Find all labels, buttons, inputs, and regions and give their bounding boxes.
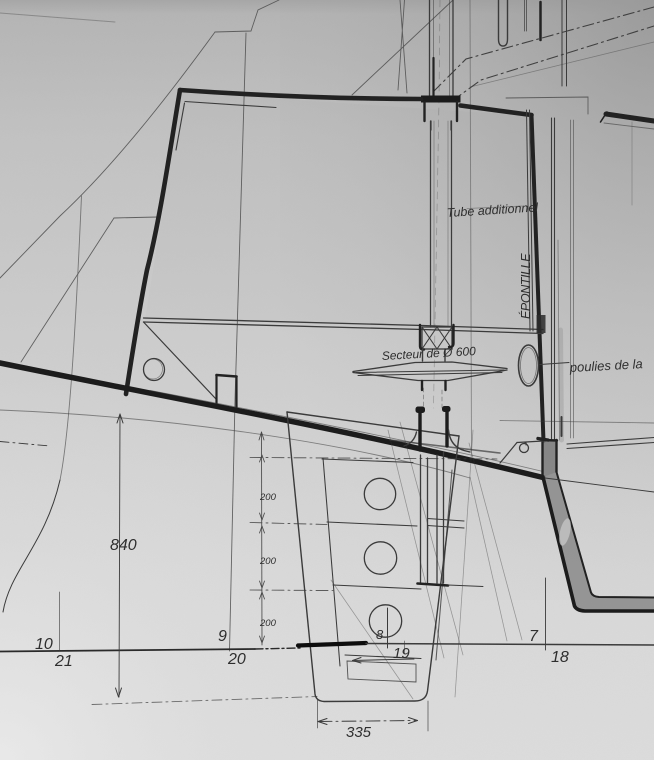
svg-text:7: 7 [529, 628, 539, 645]
svg-text:ÉPONTILLE: ÉPONTILLE [518, 253, 533, 319]
svg-text:20: 20 [227, 651, 246, 668]
svg-text:200: 200 [259, 556, 277, 567]
svg-text:200: 200 [259, 618, 277, 629]
svg-text:10: 10 [35, 636, 53, 653]
svg-text:8: 8 [376, 627, 384, 642]
svg-text:18: 18 [551, 649, 569, 666]
svg-text:200: 200 [259, 492, 277, 503]
svg-text:840: 840 [110, 537, 137, 554]
svg-text:335: 335 [346, 724, 372, 741]
svg-text:21: 21 [54, 653, 73, 670]
svg-text:19: 19 [393, 645, 410, 662]
svg-text:9: 9 [218, 628, 227, 645]
